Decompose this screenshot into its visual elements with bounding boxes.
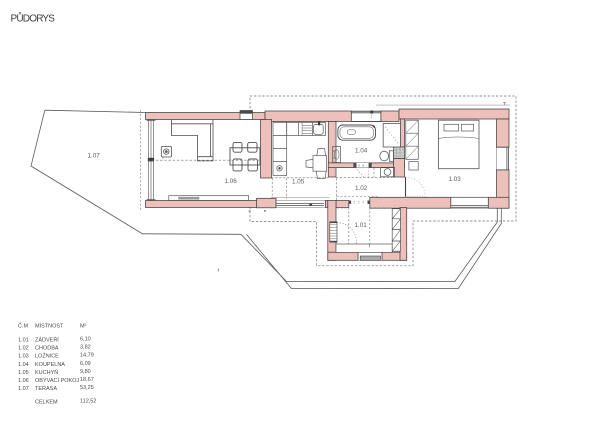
- svg-text:OBÝVACÍ POKOJ: OBÝVACÍ POKOJ: [35, 377, 79, 384]
- svg-text:1.07: 1.07: [88, 153, 101, 160]
- svg-text:ZÁDVEŘÍ: ZÁDVEŘÍ: [35, 336, 59, 344]
- svg-text:1.06: 1.06: [225, 178, 238, 185]
- svg-text:1.03: 1.03: [449, 176, 462, 183]
- svg-text:M²: M²: [80, 324, 87, 330]
- svg-text:KOUPELNA: KOUPELNA: [35, 362, 65, 368]
- svg-text:1.04: 1.04: [355, 148, 368, 155]
- svg-text:3,82: 3,82: [80, 345, 91, 351]
- svg-text:PŮDORYS: PŮDORYS: [11, 12, 56, 25]
- svg-text:MÍSTNOST: MÍSTNOST: [35, 323, 64, 330]
- svg-text:1.02: 1.02: [18, 346, 29, 352]
- svg-text:CHODBA: CHODBA: [35, 346, 59, 352]
- svg-text:1.04: 1.04: [18, 362, 29, 368]
- svg-text:18,67: 18,67: [80, 377, 94, 383]
- svg-text:1.06: 1.06: [18, 378, 29, 384]
- svg-text:CELKEM: CELKEM: [35, 400, 58, 406]
- svg-text:1.01: 1.01: [355, 222, 368, 229]
- svg-text:LOŽNICE: LOŽNICE: [35, 352, 59, 360]
- svg-text:1.05: 1.05: [18, 370, 29, 376]
- svg-text:112,52: 112,52: [80, 399, 96, 405]
- svg-text:1.07: 1.07: [18, 386, 29, 392]
- svg-text:53,25: 53,25: [80, 385, 94, 391]
- svg-text:14,79: 14,79: [80, 353, 94, 359]
- svg-text:1.01: 1.01: [18, 338, 29, 344]
- svg-text:9,80: 9,80: [80, 369, 91, 375]
- svg-text:TERASA: TERASA: [35, 386, 57, 392]
- svg-text:Č.M: Č.M: [18, 323, 29, 330]
- svg-text:1.02: 1.02: [355, 185, 368, 192]
- svg-text:KUCHYŇ: KUCHYŇ: [35, 369, 58, 376]
- svg-text:6,10: 6,10: [80, 337, 91, 343]
- svg-text:1.05: 1.05: [292, 179, 305, 186]
- svg-text:6,09: 6,09: [80, 361, 91, 367]
- svg-text:1.03: 1.03: [18, 354, 29, 360]
